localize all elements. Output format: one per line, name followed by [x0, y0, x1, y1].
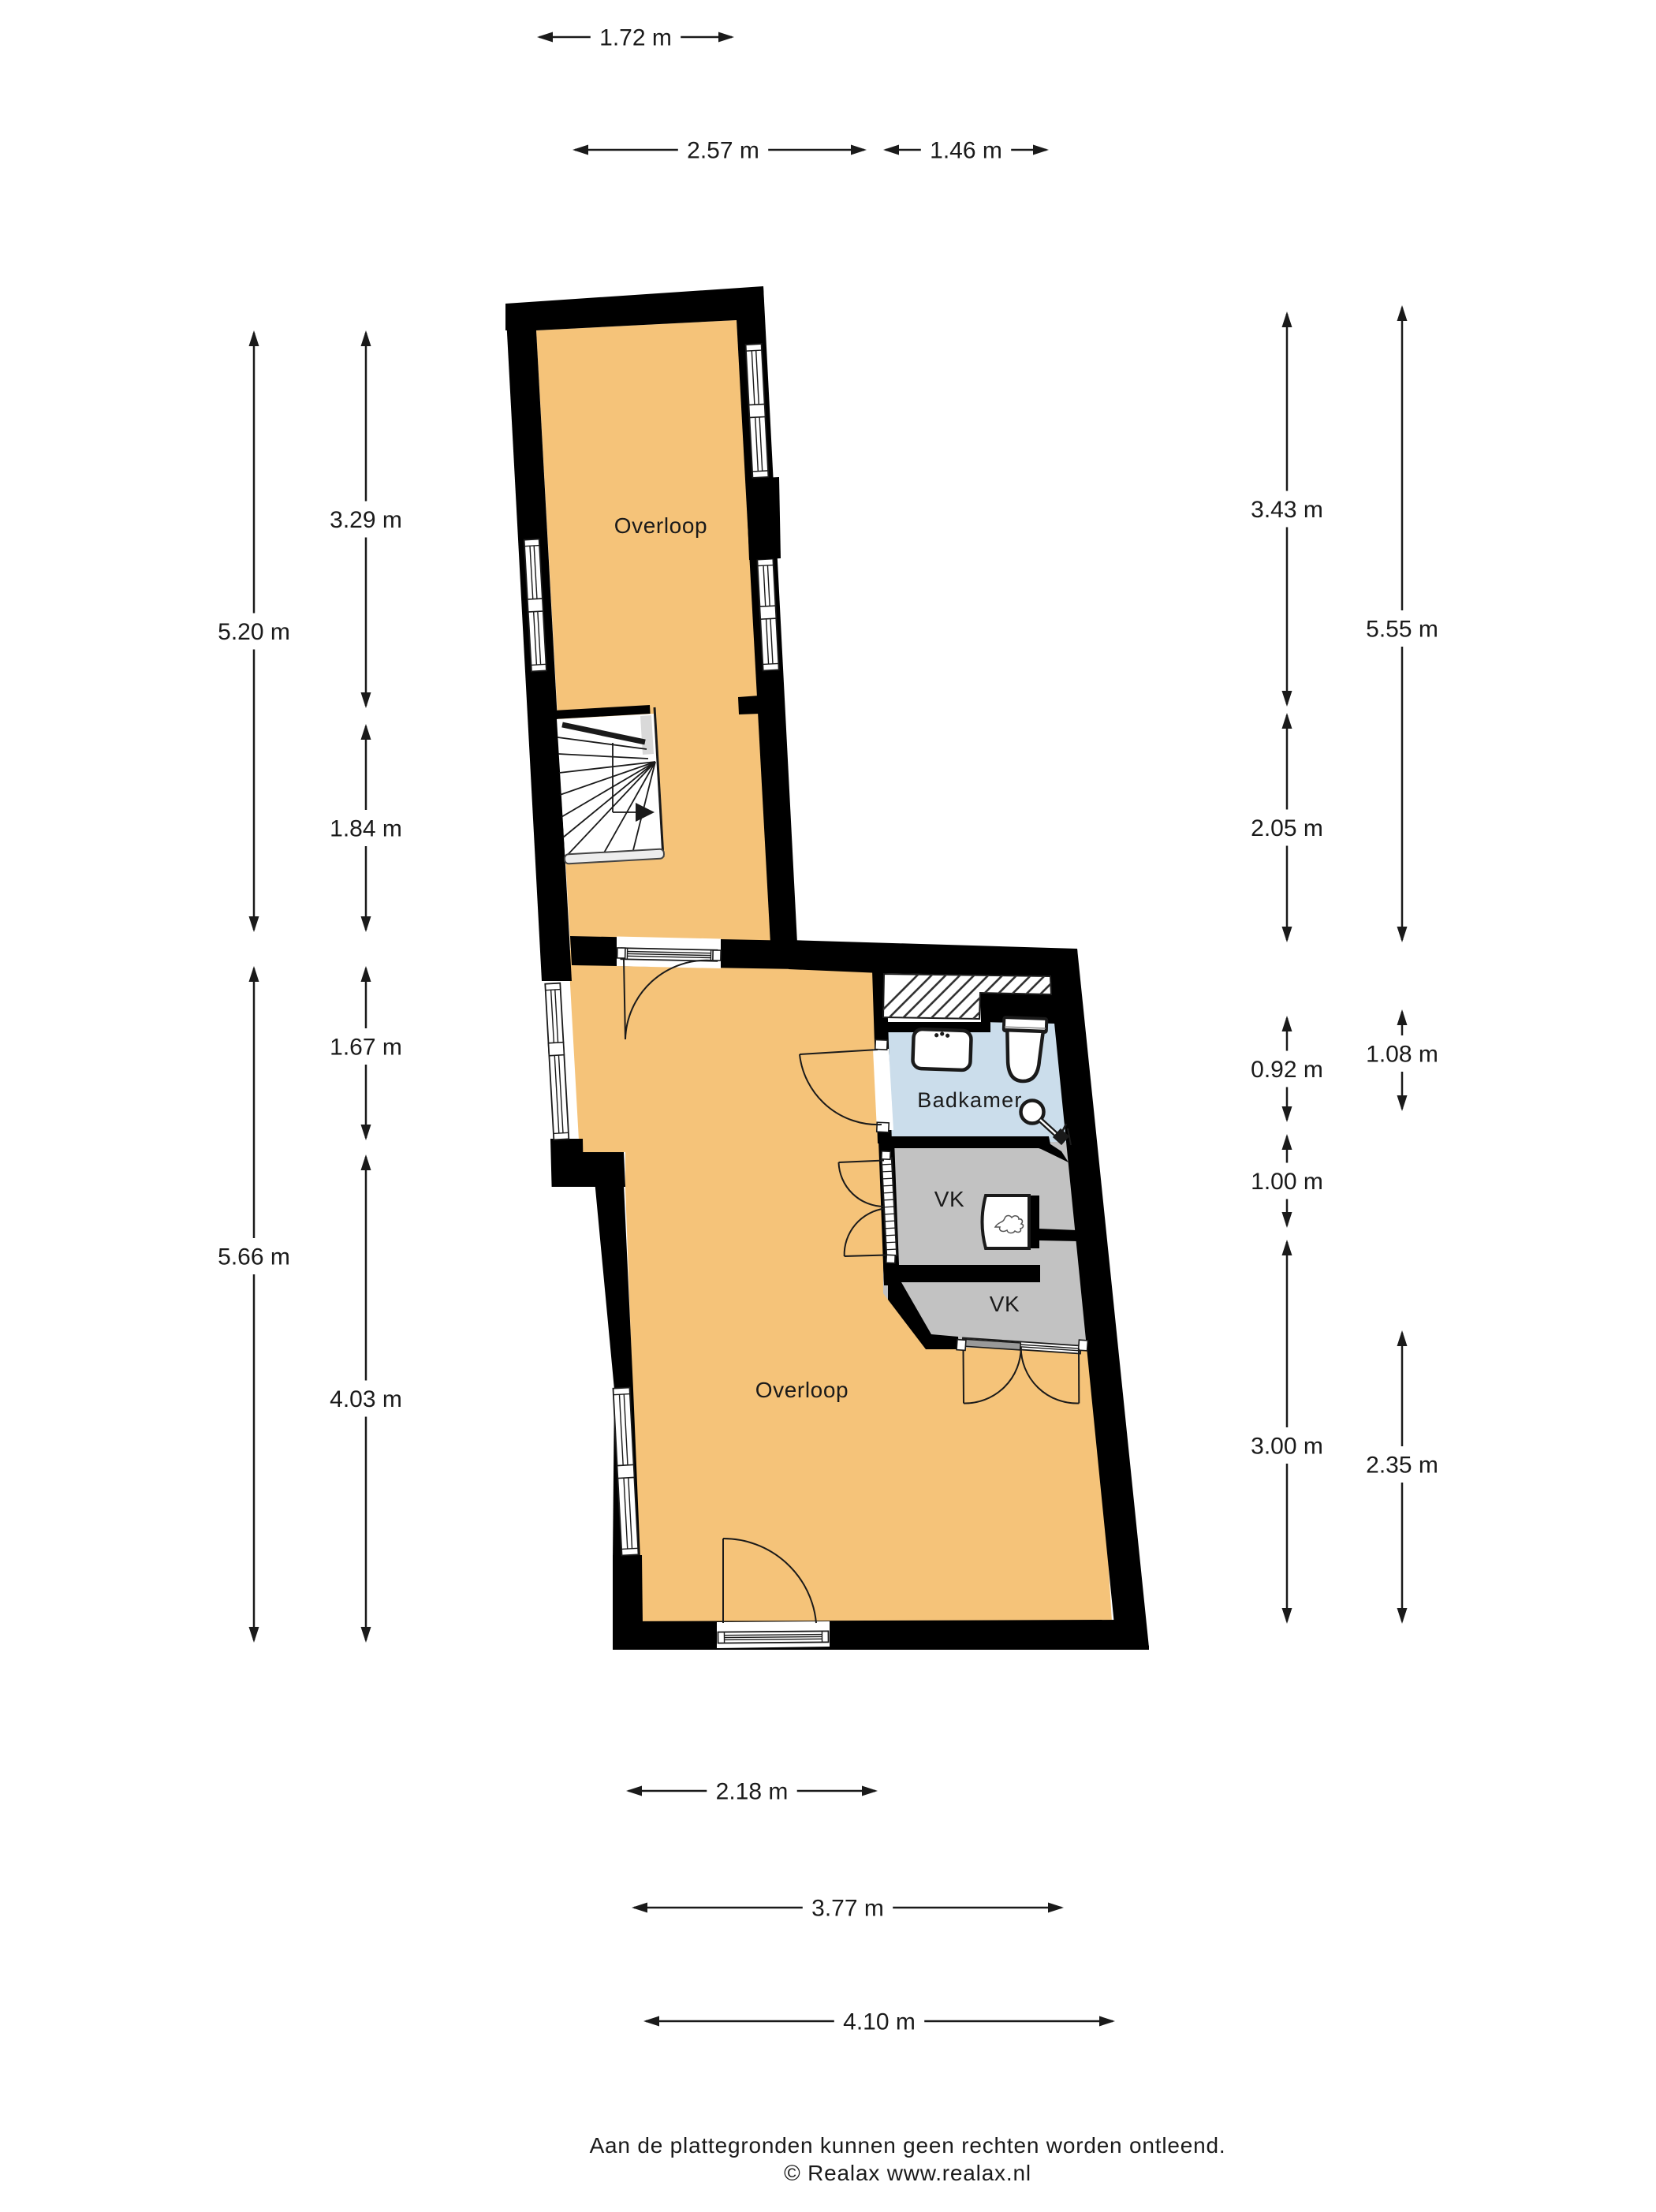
- svg-text:1.00 m: 1.00 m: [1251, 1169, 1323, 1195]
- svg-text:5.55 m: 5.55 m: [1366, 617, 1438, 643]
- svg-text:1.08 m: 1.08 m: [1366, 1042, 1438, 1068]
- svg-text:VK: VK: [990, 1292, 1020, 1316]
- svg-text:3.43 m: 3.43 m: [1251, 497, 1323, 523]
- svg-text:2.57 m: 2.57 m: [687, 138, 759, 164]
- svg-text:4.03 m: 4.03 m: [330, 1386, 402, 1412]
- svg-text:1.46 m: 1.46 m: [930, 138, 1002, 164]
- svg-text:Aan de plattegronden kunnen ge: Aan de plattegronden kunnen geen rechten…: [590, 2133, 1226, 2158]
- svg-text:Badkamer: Badkamer: [917, 1088, 1022, 1112]
- svg-text:5.66 m: 5.66 m: [218, 1244, 290, 1270]
- svg-text:0.92 m: 0.92 m: [1251, 1057, 1323, 1083]
- svg-text:5.20 m: 5.20 m: [218, 619, 290, 645]
- svg-text:Overloop: Overloop: [614, 513, 707, 538]
- svg-text:Overloop: Overloop: [755, 1378, 849, 1402]
- svg-text:3.29 m: 3.29 m: [330, 507, 402, 533]
- svg-text:2.35 m: 2.35 m: [1366, 1453, 1438, 1479]
- svg-text:VK: VK: [934, 1187, 965, 1211]
- svg-text:1.67 m: 1.67 m: [330, 1035, 402, 1061]
- svg-text:3.77 m: 3.77 m: [811, 1896, 884, 1922]
- svg-text:2.18 m: 2.18 m: [716, 1779, 789, 1805]
- svg-text:1.72 m: 1.72 m: [599, 25, 672, 51]
- svg-text:2.05 m: 2.05 m: [1251, 815, 1323, 841]
- svg-text:1.84 m: 1.84 m: [330, 816, 402, 842]
- svg-text:3.00 m: 3.00 m: [1251, 1434, 1323, 1460]
- svg-text:© Realax www.realax.nl: © Realax www.realax.nl: [784, 2161, 1031, 2185]
- svg-text:4.10 m: 4.10 m: [843, 2009, 916, 2035]
